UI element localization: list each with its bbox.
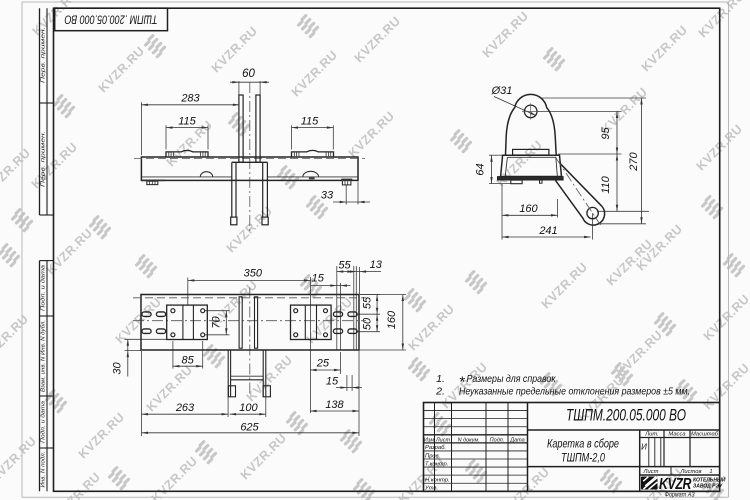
svg-text:60: 60 <box>242 68 255 80</box>
svg-text:263: 263 <box>175 402 195 414</box>
svg-text:И: И <box>641 443 647 452</box>
svg-text:Утв.: Утв. <box>424 485 438 491</box>
svg-text:KVZR.RU: KVZR.RU <box>406 302 458 354</box>
svg-text:138: 138 <box>325 399 344 411</box>
svg-text:KVZR.RU: KVZR.RU <box>480 9 532 61</box>
svg-text:ТШПМ-2,0: ТШПМ-2,0 <box>561 453 605 465</box>
svg-text:30: 30 <box>112 362 124 375</box>
svg-text:KVZR.RU: KVZR.RU <box>0 312 31 364</box>
svg-text:25: 25 <box>316 357 330 369</box>
svg-text:241: 241 <box>538 225 557 237</box>
svg-text:KVZR.RU: KVZR.RU <box>346 109 398 161</box>
svg-text:ЗАВОД РЭУ: ЗАВОД РЭУ <box>693 484 723 490</box>
svg-text:KVZR.RU: KVZR.RU <box>701 361 750 413</box>
svg-text:64: 64 <box>475 163 487 175</box>
svg-text:KVZR.RU: KVZR.RU <box>696 0 748 40</box>
svg-text:115: 115 <box>301 115 319 127</box>
svg-text:Инв. N подл.: Инв. N подл. <box>40 452 46 488</box>
svg-text:Подп.: Подп. <box>490 437 505 443</box>
svg-text:Лит.: Лит. <box>644 431 659 437</box>
svg-text:160: 160 <box>386 310 398 329</box>
svg-text:Подп. и дата: Подп. и дата <box>40 265 46 311</box>
svg-text:Изм: Изм <box>424 437 434 443</box>
svg-text:KVZR.RU: KVZR.RU <box>52 470 104 500</box>
svg-text:13: 13 <box>370 259 383 271</box>
svg-text:Разраб.: Разраб. <box>425 445 446 451</box>
svg-text:625: 625 <box>240 422 259 434</box>
svg-text:Пров.: Пров. <box>425 453 440 459</box>
svg-text:Масштаб: Масштаб <box>691 431 719 437</box>
svg-text:KVZR.RU: KVZR.RU <box>0 146 33 198</box>
svg-text:ТШПМ.200.05.000 ВО: ТШПМ.200.05.000 ВО <box>566 407 686 425</box>
svg-text:КОТЕЛЬНЫЙ: КОТЕЛЬНЫЙ <box>693 476 726 484</box>
svg-text:Взам. инв. N Инв. N дубл.: Взам. инв. N Инв. N дубл. <box>40 320 46 392</box>
svg-text:115: 115 <box>178 115 196 127</box>
svg-text:Лист: Лист <box>435 437 451 443</box>
svg-text:KVZR: KVZR <box>659 476 692 493</box>
svg-text:KVZR.RU: KVZR.RU <box>96 44 148 96</box>
svg-text:Листов: Листов <box>679 469 701 475</box>
svg-text:2.: 2. <box>435 385 445 397</box>
svg-text:15: 15 <box>312 273 325 285</box>
svg-text:Лист: Лист <box>643 469 659 475</box>
svg-text:ТШПМ .200.05.000 ВО: ТШПМ .200.05.000 ВО <box>65 13 158 27</box>
svg-text:Дата: Дата <box>509 437 525 443</box>
svg-text:KVZR.RU: KVZR.RU <box>76 410 128 462</box>
svg-text:350: 350 <box>244 268 263 280</box>
svg-text:Масса: Масса <box>668 431 686 437</box>
svg-text:Подп. и дата: Подп. и дата <box>40 401 46 443</box>
svg-text:Ø31: Ø31 <box>491 85 513 97</box>
svg-text:Перв. примен.: Перв. примен. <box>40 27 46 83</box>
svg-text:KVZR.RU: KVZR.RU <box>238 431 290 483</box>
svg-text:Т.контр.: Т.контр. <box>425 461 448 467</box>
svg-text:1: 1 <box>709 469 712 475</box>
svg-text:Каретка в сборе: Каретка в сборе <box>547 439 619 451</box>
svg-text:110: 110 <box>600 175 612 193</box>
svg-text:50: 50 <box>362 317 374 330</box>
svg-text:55: 55 <box>338 260 351 272</box>
svg-text:1.: 1. <box>436 373 445 385</box>
svg-text:KVZR.RU: KVZR.RU <box>639 23 691 75</box>
svg-text:Перв. примен.: Перв. примен. <box>40 131 46 187</box>
svg-text:KVZR.RU: KVZR.RU <box>539 260 591 312</box>
svg-text:KVZR.RU: KVZR.RU <box>44 226 96 278</box>
svg-text:Размеры для справок: Размеры для справок <box>467 373 557 385</box>
svg-text:85: 85 <box>181 355 194 367</box>
svg-text:33: 33 <box>321 190 334 202</box>
svg-text:70: 70 <box>211 316 223 329</box>
svg-text:100: 100 <box>239 402 258 414</box>
svg-text:KVZR.RU: KVZR.RU <box>29 140 81 192</box>
svg-text:KVZR.RU: KVZR.RU <box>0 434 39 486</box>
svg-text:15: 15 <box>326 375 339 387</box>
svg-text:Н.контр.: Н.контр. <box>425 478 450 484</box>
svg-text:KVZR.RU: KVZR.RU <box>149 454 201 500</box>
svg-text:160: 160 <box>519 203 538 215</box>
svg-text:283: 283 <box>180 93 200 105</box>
svg-text:KVZR.RU: KVZR.RU <box>701 292 750 344</box>
svg-text:95: 95 <box>600 127 612 140</box>
svg-text:KVZR.RU: KVZR.RU <box>289 48 341 100</box>
svg-text:KVZR.RU: KVZR.RU <box>352 14 404 66</box>
svg-text:270: 270 <box>628 151 640 171</box>
svg-text:Неуказанные предельные отклоне: Неуказанные предельные отклонения размер… <box>459 385 690 397</box>
svg-text:N докум.: N докум. <box>458 437 480 443</box>
